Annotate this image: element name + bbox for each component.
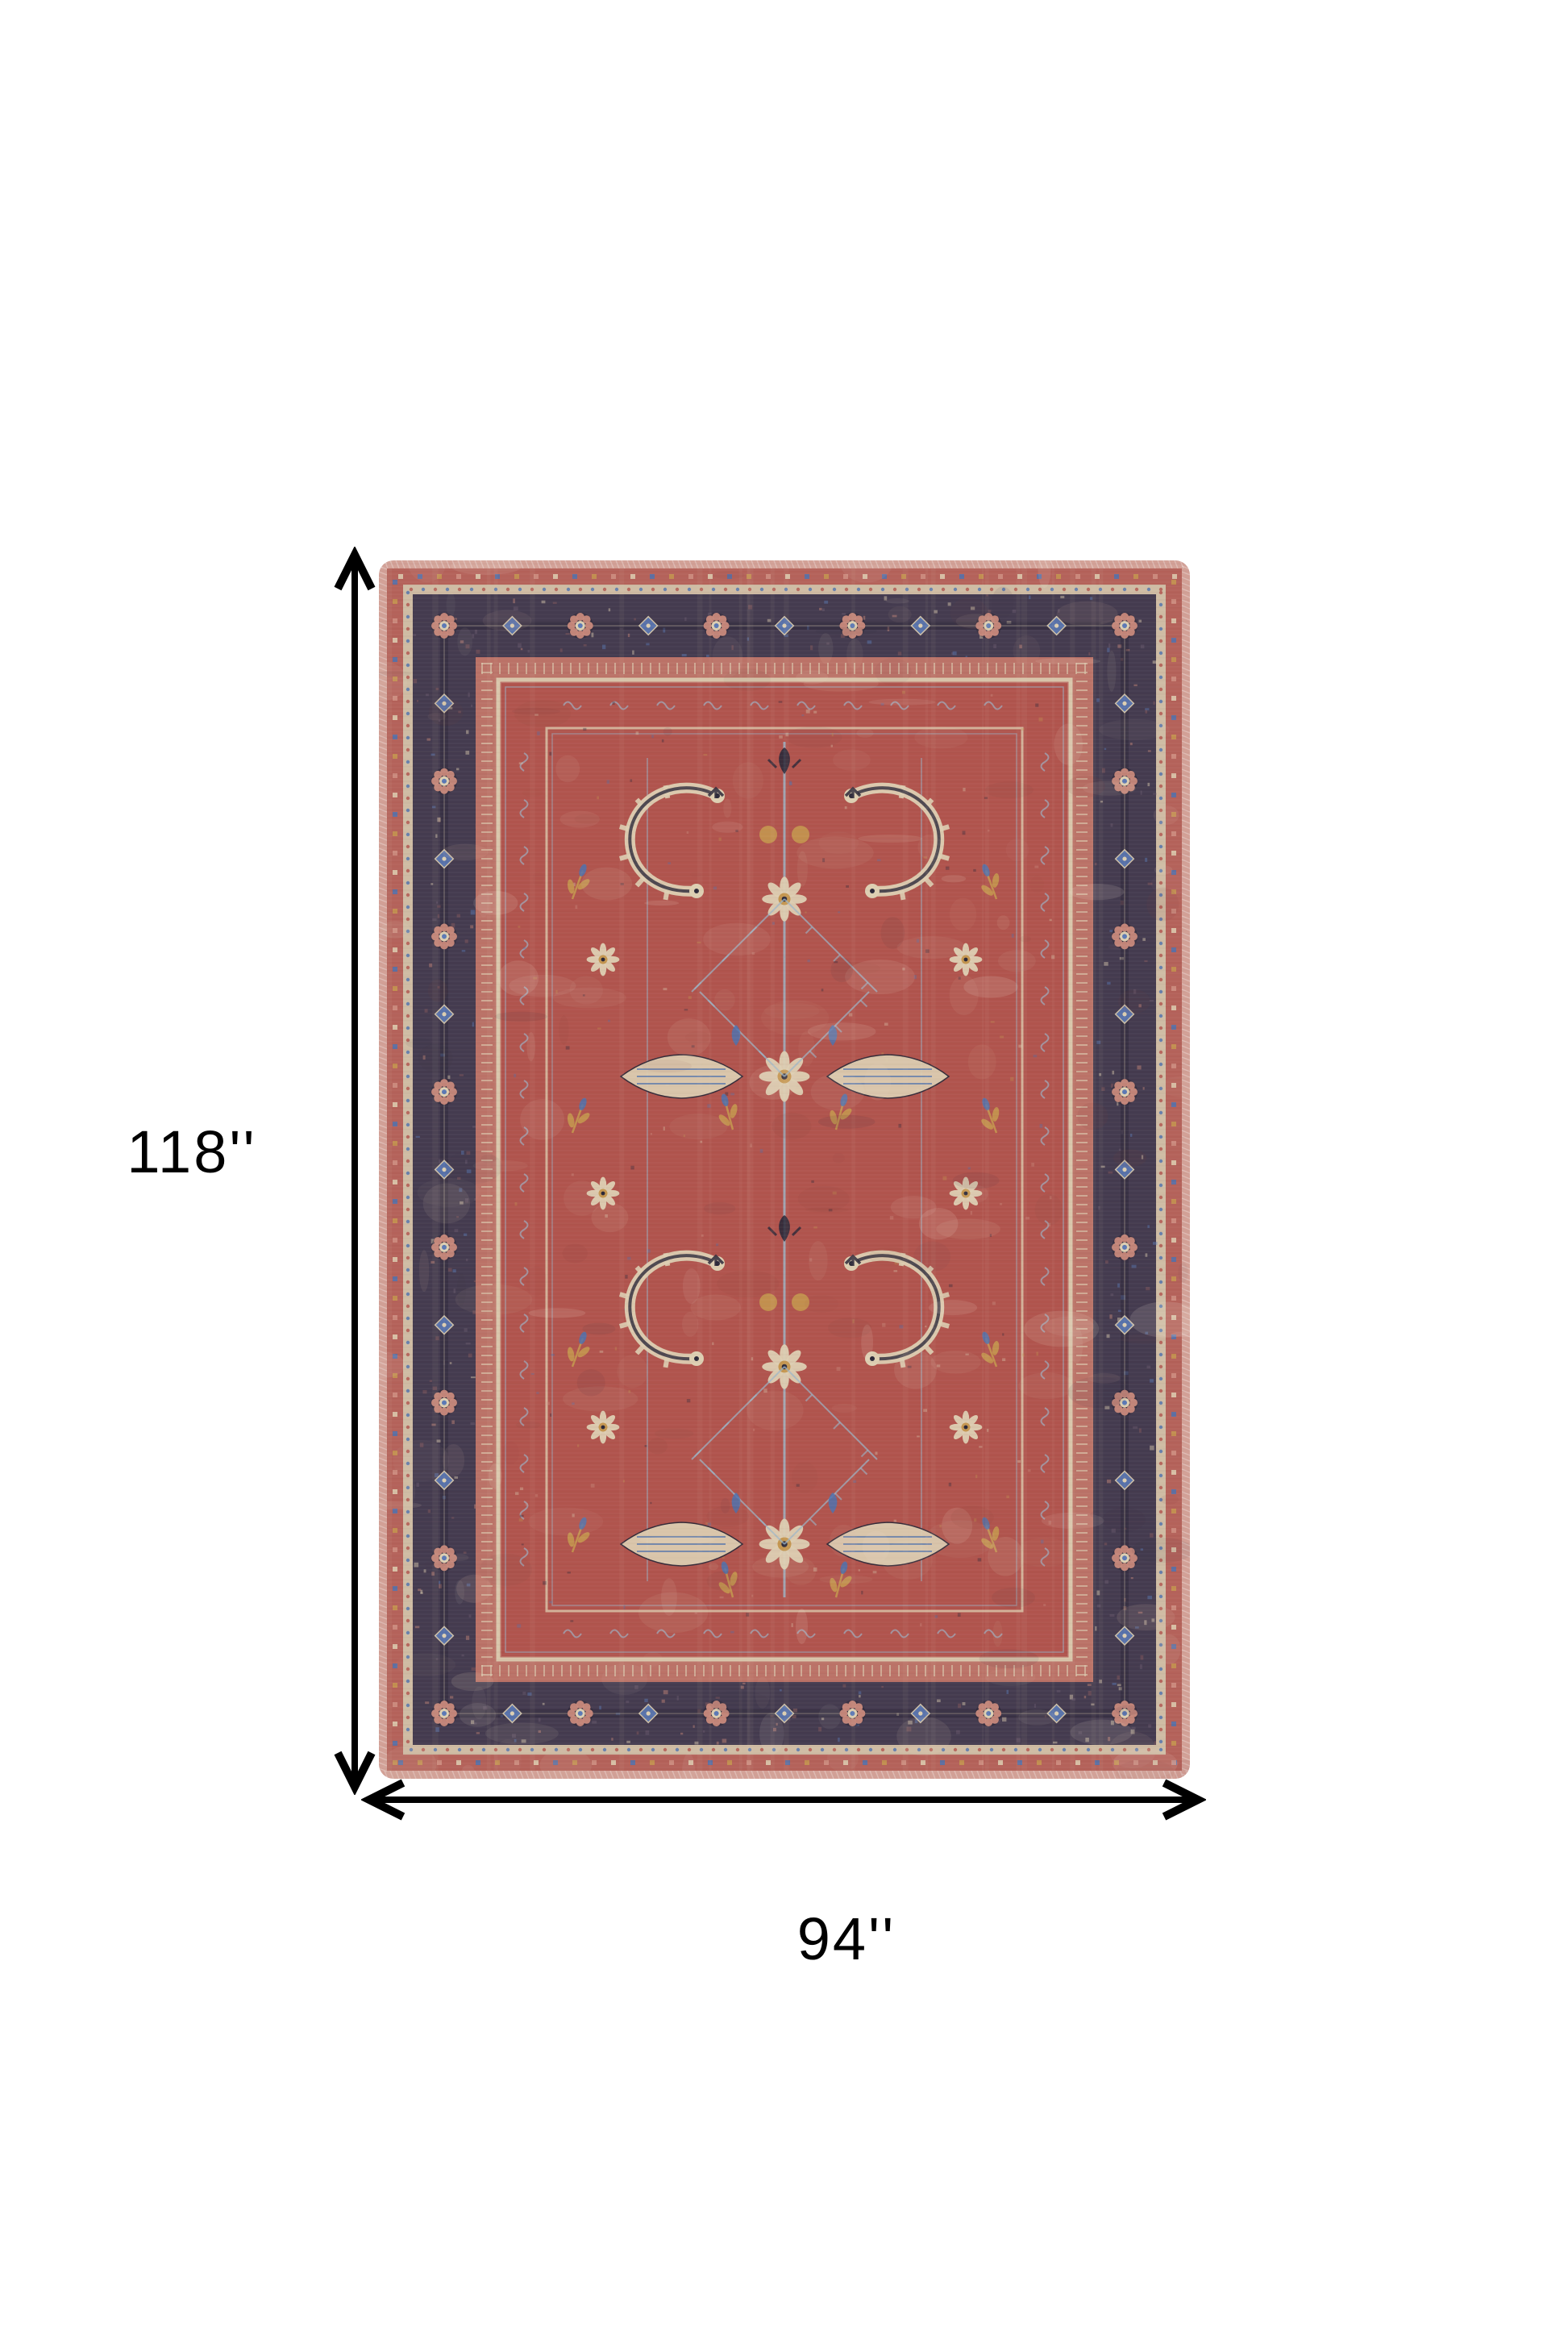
height-dimension-label: 118'' (87, 1118, 297, 1186)
product-dimension-figure: 118'' 94'' (0, 0, 1568, 2344)
height-dimension-arrow (326, 547, 383, 1795)
rug-illustration (379, 560, 1190, 1779)
width-dimension-label: 94'' (742, 1905, 951, 1973)
width-dimension-arrow (361, 1772, 1206, 1827)
rug-image (379, 560, 1190, 1779)
